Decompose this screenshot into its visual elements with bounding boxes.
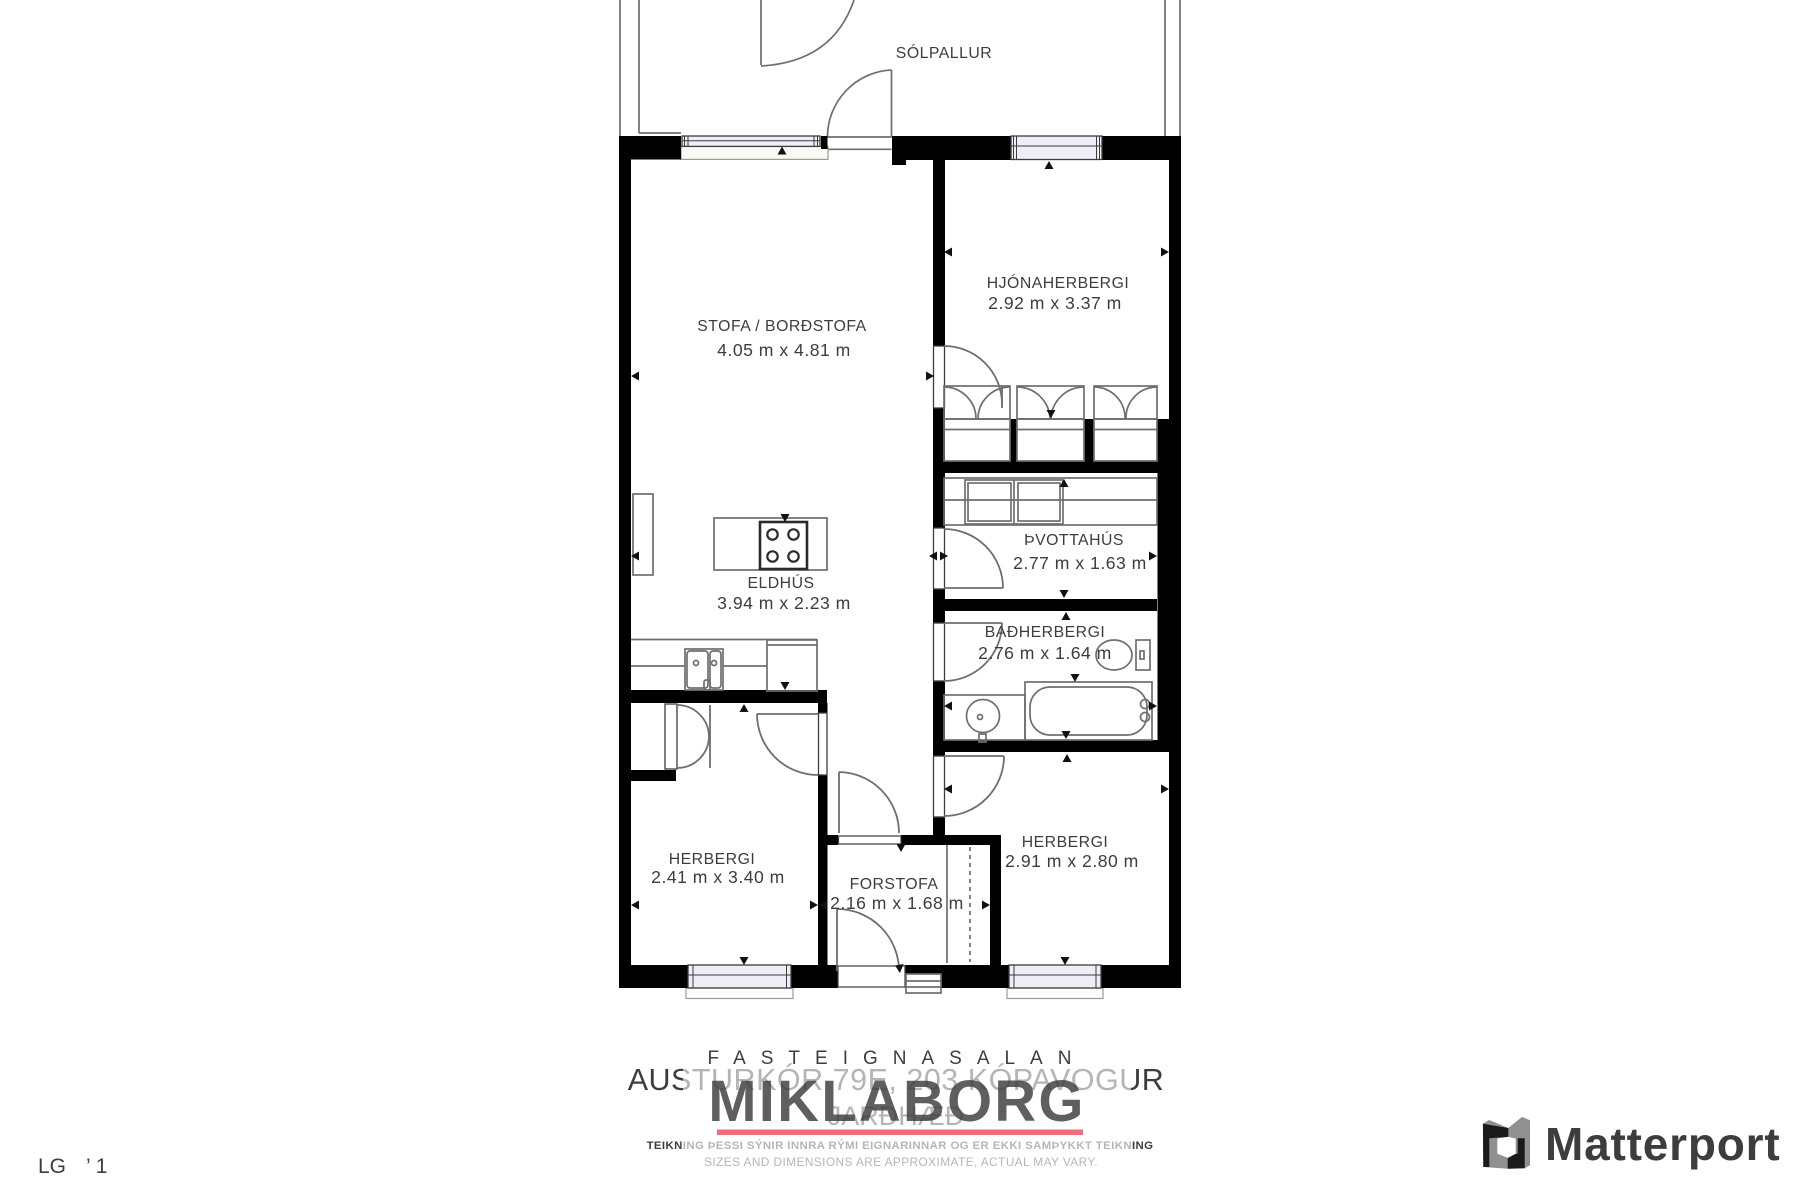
svg-text:Matterport: Matterport bbox=[1545, 1118, 1780, 1170]
svg-text:BAÐHERBERGI: BAÐHERBERGI bbox=[985, 624, 1106, 641]
svg-text:STOFA / BORÐSTOFA: STOFA / BORÐSTOFA bbox=[697, 318, 866, 335]
svg-text:HJÓNAHERBERGI: HJÓNAHERBERGI bbox=[987, 273, 1130, 292]
svg-text:HERBERGI: HERBERGI bbox=[1022, 834, 1109, 851]
svg-text:2.91 m x 2.80 m: 2.91 m x 2.80 m bbox=[1005, 851, 1139, 871]
svg-text:MIKLABORG: MIKLABORG bbox=[708, 1069, 1085, 1134]
svg-text:2.92 m x 3.37 m: 2.92 m x 3.37 m bbox=[988, 293, 1122, 313]
svg-text:2.41 m x 3.40 m: 2.41 m x 3.40 m bbox=[651, 867, 785, 887]
svg-text:SÓLPALLUR: SÓLPALLUR bbox=[896, 43, 992, 62]
svg-text:HERBERGI: HERBERGI bbox=[669, 851, 756, 868]
svg-text:ELDHÚS: ELDHÚS bbox=[747, 573, 814, 592]
svg-text:’ 1: ’ 1 bbox=[86, 1155, 107, 1178]
svg-text:2.16 m x 1.68 m: 2.16 m x 1.68 m bbox=[830, 893, 964, 913]
svg-text:4.05 m x 4.81 m: 4.05 m x 4.81 m bbox=[717, 340, 851, 360]
svg-text:ÞVOTTAHÚS: ÞVOTTAHÚS bbox=[1024, 530, 1124, 549]
svg-text:2.76 m x 1.64 m: 2.76 m x 1.64 m bbox=[978, 643, 1112, 663]
svg-text:2.77 m x 1.63 m: 2.77 m x 1.63 m bbox=[1013, 553, 1147, 573]
svg-text:FASTEIGNASALAN: FASTEIGNASALAN bbox=[708, 1048, 1087, 1069]
svg-text:LG: LG bbox=[38, 1155, 66, 1178]
svg-text:3.94 m x 2.23 m: 3.94 m x 2.23 m bbox=[717, 593, 851, 613]
svg-text:FORSTOFA: FORSTOFA bbox=[850, 876, 939, 893]
